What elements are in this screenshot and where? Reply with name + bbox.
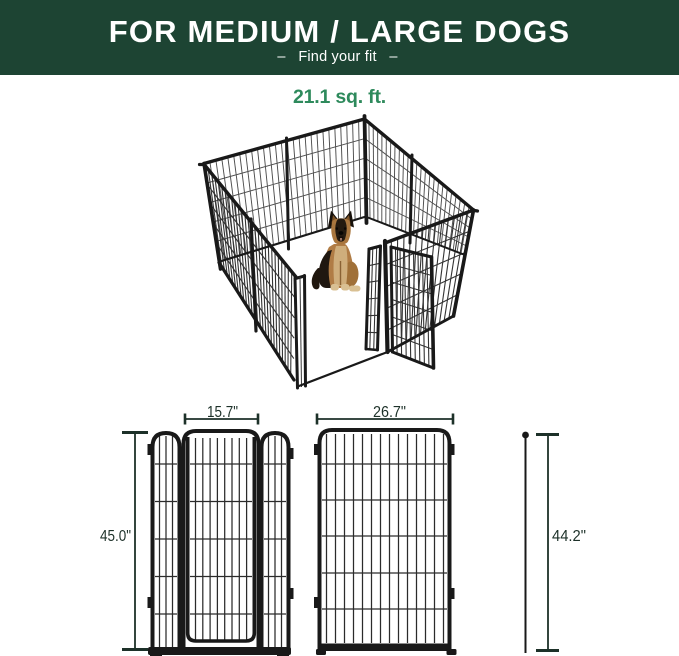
svg-text:26.7": 26.7"	[373, 404, 406, 421]
svg-text:45.0": 45.0"	[100, 528, 131, 545]
svg-text:15.7": 15.7"	[207, 404, 238, 421]
svg-text:44.2": 44.2"	[552, 528, 586, 545]
